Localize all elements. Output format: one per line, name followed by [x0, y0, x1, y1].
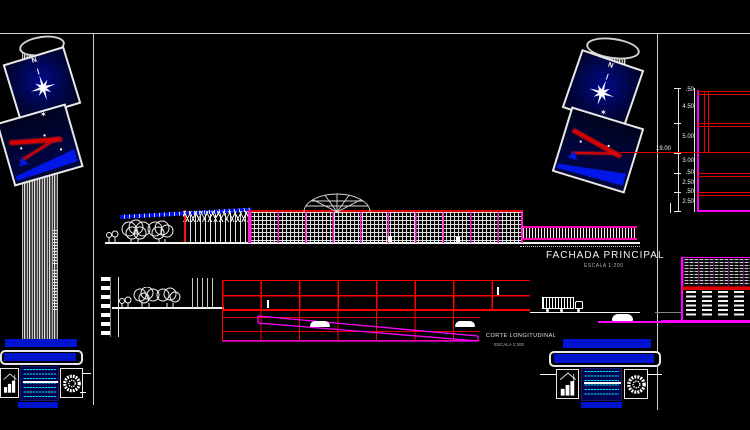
titleblock-center-bar — [563, 339, 651, 348]
dim-value: 5.00 — [679, 134, 694, 140]
truck-cab — [575, 301, 583, 309]
section-ramp — [222, 311, 480, 343]
facade-scale-label: ESCALA 1:200 — [584, 263, 623, 269]
person-figure — [267, 300, 269, 308]
titleblock-handle — [540, 374, 556, 375]
person-figure — [497, 287, 499, 295]
dim-value: 2.50 — [679, 199, 694, 205]
elevation-column — [704, 91, 705, 153]
facade-title: FACHADA PRINCIPAL — [546, 250, 665, 261]
titleblock-center-bar3 — [581, 402, 622, 408]
frame-top-line — [0, 33, 750, 34]
detail-gray-tick — [655, 312, 681, 313]
detail-bottom-edge — [661, 320, 750, 322]
section-ground-line-right — [530, 312, 640, 314]
dim-value: 2.50 — [679, 180, 694, 186]
facade-dome — [303, 193, 371, 212]
site-red-line — [572, 152, 618, 155]
star-marker: ✶ — [600, 108, 607, 117]
detail-top-edge — [681, 257, 750, 258]
small-tick — [670, 203, 671, 213]
titleblock-left-bar — [5, 339, 77, 347]
seal-logo-icon — [626, 371, 647, 398]
level-line — [697, 195, 750, 196]
titleblock-left-bar3 — [18, 402, 58, 408]
facade-dotted-line — [520, 246, 640, 248]
facade-lattice-band — [183, 211, 248, 222]
site-speck — [20, 147, 22, 149]
dimension-line-2 — [694, 88, 695, 212]
dim-value: .50 — [679, 189, 694, 195]
site-blue-wedge — [557, 140, 631, 189]
car-symbol — [612, 314, 633, 321]
dim-value: 3.00 — [679, 158, 694, 164]
frame-left-line — [93, 33, 94, 405]
level-line — [697, 176, 750, 177]
level-base-line — [697, 210, 750, 212]
detail-ladder-columns — [686, 291, 750, 318]
dim-tick — [674, 123, 681, 124]
rolled-sheet-left-label-text — [53, 270, 57, 312]
site-speck — [579, 140, 581, 142]
cad-canvas: N ✶ N ✶ — [0, 0, 750, 430]
building-logo-panel — [556, 369, 579, 399]
car-symbol — [310, 321, 330, 327]
seal-logo-panel — [60, 368, 83, 398]
elevation-column — [708, 91, 709, 153]
titleblock-highlight-row — [584, 382, 621, 384]
total-height-value: 19.00 — [656, 146, 671, 152]
facade-low-wing-band — [523, 226, 637, 240]
titleblock-center-text-area — [581, 368, 622, 401]
section-scale-label: ESCALA 1:200 — [494, 342, 524, 347]
titleblock-left-bar2 — [4, 353, 76, 361]
dim-value: 4.50 — [679, 104, 694, 110]
facade-trees — [104, 219, 178, 243]
dim-value: .50 — [679, 87, 694, 93]
detail-red-band — [682, 286, 750, 290]
north-label: N — [31, 57, 38, 65]
seal-logo-panel — [624, 369, 648, 399]
north-label: N — [607, 62, 614, 70]
titleblock-micro-text — [23, 369, 56, 398]
level-line — [697, 192, 750, 193]
titleblock-handle — [80, 392, 86, 393]
site-speck — [607, 145, 609, 147]
star-marker: ✶ — [40, 110, 47, 119]
titleblock-handle — [83, 373, 91, 374]
car-symbol — [455, 321, 475, 327]
titleblock-handle — [648, 374, 662, 375]
building-logo-panel — [0, 368, 19, 398]
dim-tick — [674, 211, 681, 212]
detail-upper-hatch — [683, 259, 750, 286]
section-trees — [118, 287, 182, 308]
site-speck — [60, 148, 62, 150]
seal-logo-icon — [62, 370, 82, 397]
truck-trailer — [542, 297, 574, 309]
level-line — [697, 173, 750, 174]
section-columns — [192, 278, 216, 308]
dim-value: .50 — [679, 170, 694, 176]
facade-door-mark — [456, 237, 460, 242]
titleblock-center-bar2 — [554, 354, 654, 363]
section-level-scale-bar — [101, 277, 111, 337]
rolled-sheet-left-label-text — [53, 230, 57, 264]
section-title: CORTE LONGITUDINAL — [486, 333, 556, 339]
building-logo-icon — [2, 370, 18, 397]
titleblock-highlight-row — [23, 381, 58, 383]
titleblock-micro-text — [584, 371, 619, 398]
total-height-line — [620, 152, 750, 153]
site-speck — [43, 134, 45, 136]
building-logo-icon — [558, 371, 578, 398]
facade-curtainwall-grid — [248, 210, 523, 243]
titleblock-left-text-area — [20, 366, 59, 401]
site-plan-panel-right — [552, 106, 645, 193]
facade-door-mark — [388, 236, 392, 242]
